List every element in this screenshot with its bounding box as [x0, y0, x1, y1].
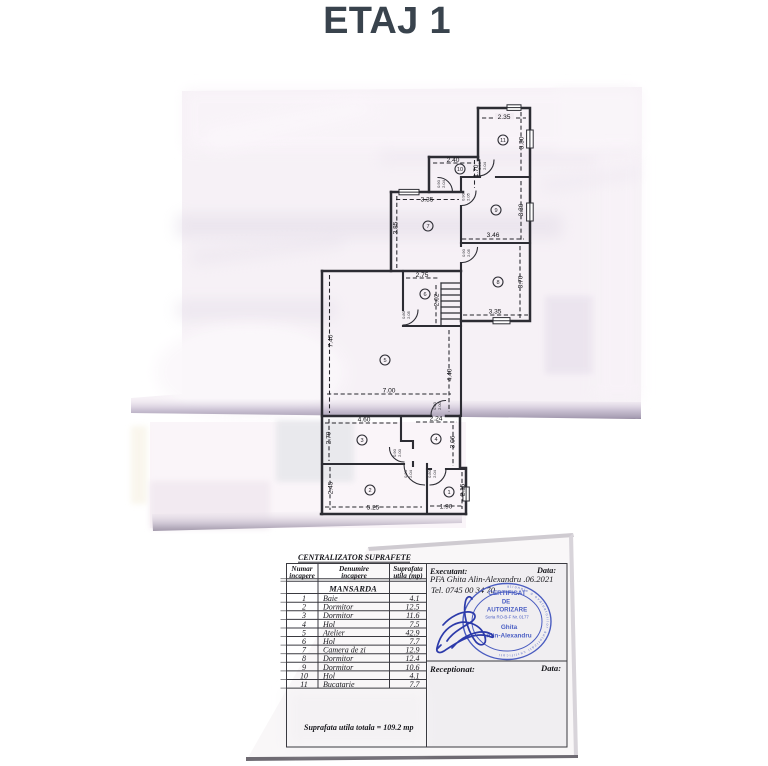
svg-text:1.90: 1.90 [440, 504, 453, 511]
svg-text:3.35: 3.35 [421, 197, 434, 204]
svg-text:2.04: 2.04 [408, 469, 413, 478]
svg-text:DE: DE [502, 600, 510, 606]
svg-text:7.40: 7.40 [328, 334, 335, 347]
svg-text:incapere: incapere [341, 572, 367, 580]
svg-text:2.24: 2.24 [430, 416, 443, 423]
svg-text:2.75: 2.75 [416, 272, 429, 279]
svg-text:3.35: 3.35 [489, 309, 502, 316]
svg-text:7: 7 [426, 224, 429, 230]
svg-text:2.79: 2.79 [326, 431, 333, 444]
svg-text:Ghita: Ghita [501, 624, 518, 631]
svg-text:incapere: incapere [289, 572, 315, 580]
svg-text:9: 9 [494, 208, 497, 214]
svg-text:3: 3 [360, 438, 363, 444]
svg-text:3.06: 3.06 [450, 435, 457, 448]
svg-text:2.00: 2.00 [437, 401, 442, 410]
svg-text:utila (mp): utila (mp) [393, 572, 422, 580]
svg-text:2.40: 2.40 [447, 157, 460, 164]
svg-text:3.30: 3.30 [518, 203, 525, 216]
svg-text:2.35: 2.35 [498, 114, 511, 121]
svg-text:3.70: 3.70 [518, 275, 525, 288]
svg-text:2: 2 [368, 488, 371, 494]
svg-text:1: 1 [447, 490, 450, 496]
svg-text:7.7: 7.7 [410, 680, 421, 689]
svg-text:8: 8 [496, 280, 499, 286]
svg-text:2.05: 2.05 [466, 192, 471, 201]
svg-text:10: 10 [457, 167, 463, 173]
svg-text:Data:: Data: [540, 663, 561, 673]
svg-text:7.00: 7.00 [383, 388, 396, 395]
svg-text:3.85: 3.85 [393, 221, 400, 234]
svg-text:AUTORIZARE: AUTORIZARE [487, 607, 527, 614]
svg-text:3.30: 3.30 [519, 136, 526, 149]
svg-text:2.04: 2.04 [432, 469, 437, 478]
svg-text:5.25: 5.25 [367, 505, 380, 512]
svg-text:2.04: 2.04 [441, 179, 446, 188]
svg-text:CERTIFICAT: CERTIFICAT [488, 590, 526, 597]
svg-text:Receptionat:: Receptionat: [429, 664, 475, 674]
svg-text:Seria RO-B-F Nr. 0177: Seria RO-B-F Nr. 0177 [485, 615, 529, 620]
svg-text:4.40: 4.40 [447, 368, 454, 381]
svg-text:2.00: 2.00 [397, 448, 402, 457]
svg-text:2.02: 2.02 [434, 293, 441, 306]
svg-text:6: 6 [423, 292, 426, 298]
svg-text:Suprafata utila totala = 109.2: Suprafata utila totala = 109.2 mp [304, 723, 413, 732]
svg-text:2.05: 2.05 [406, 310, 411, 319]
svg-text:11: 11 [300, 680, 307, 689]
svg-text:3.46: 3.46 [487, 232, 500, 239]
svg-text:CENTRALIZATOR SUPRAFETE: CENTRALIZATOR SUPRAFETE [298, 553, 412, 562]
svg-text:2.04: 2.04 [482, 161, 487, 170]
svg-text:11: 11 [500, 138, 506, 144]
svg-text:Tel. 0745 00 34 70: Tel. 0745 00 34 70 [431, 585, 496, 595]
svg-text:PFA Ghita Alin-Alexandru .: PFA Ghita Alin-Alexandru .06.2021 [429, 574, 553, 584]
svg-text:Bucatarie: Bucatarie [323, 680, 355, 689]
svg-text:2.05: 2.05 [466, 248, 471, 257]
svg-text:4: 4 [434, 437, 437, 443]
svg-text:4.60: 4.60 [358, 417, 371, 424]
svg-text:MANSARDA: MANSARDA [328, 584, 377, 594]
svg-text:2.45: 2.45 [328, 481, 335, 494]
svg-text:2.15: 2.15 [460, 483, 467, 496]
svg-text:5: 5 [383, 358, 386, 364]
